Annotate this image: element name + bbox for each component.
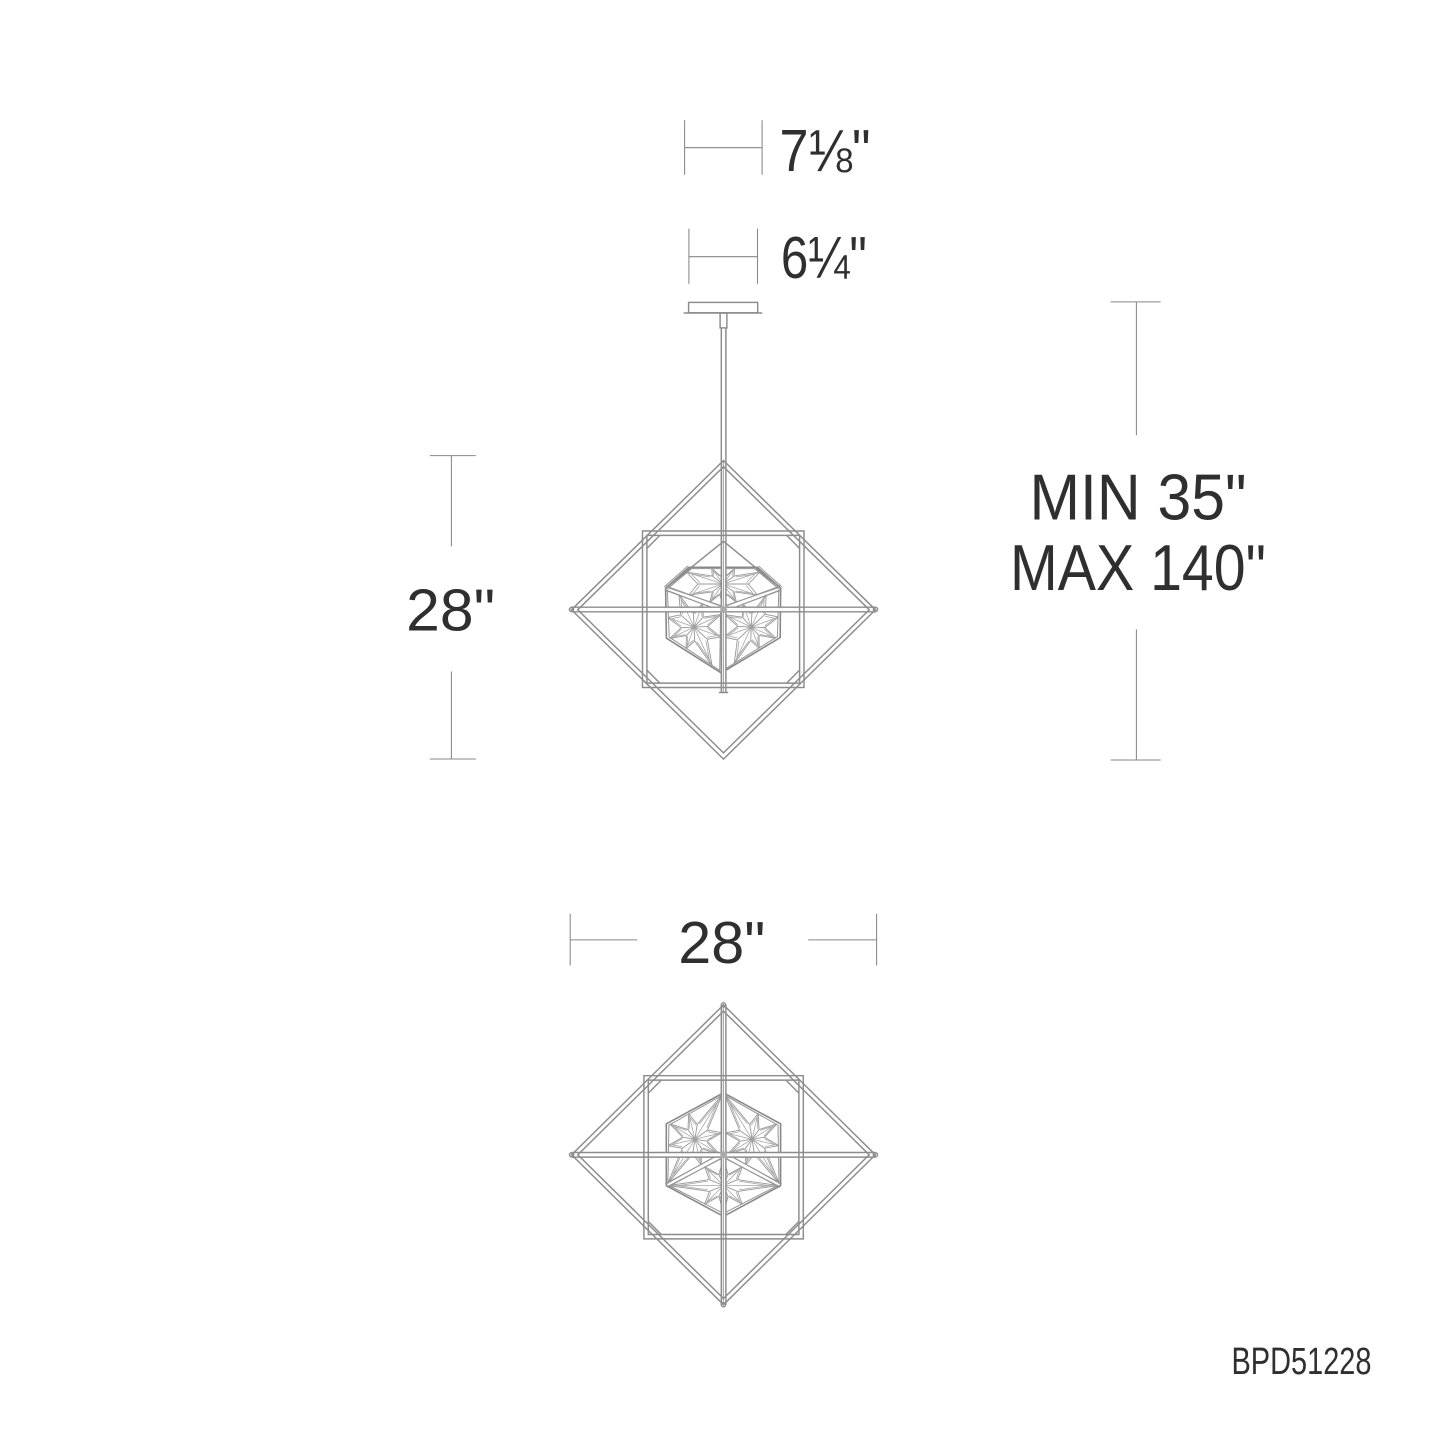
svg-text:BPD51228: BPD51228	[1232, 1341, 1372, 1383]
svg-text:28": 28"	[406, 577, 495, 643]
svg-text:7⅛": 7⅛"	[780, 118, 871, 184]
svg-text:MIN 35": MIN 35"	[1030, 461, 1247, 534]
svg-text:28": 28"	[678, 910, 765, 976]
svg-text:6¼": 6¼"	[781, 225, 867, 291]
svg-text:MAX 140": MAX 140"	[1010, 531, 1266, 604]
